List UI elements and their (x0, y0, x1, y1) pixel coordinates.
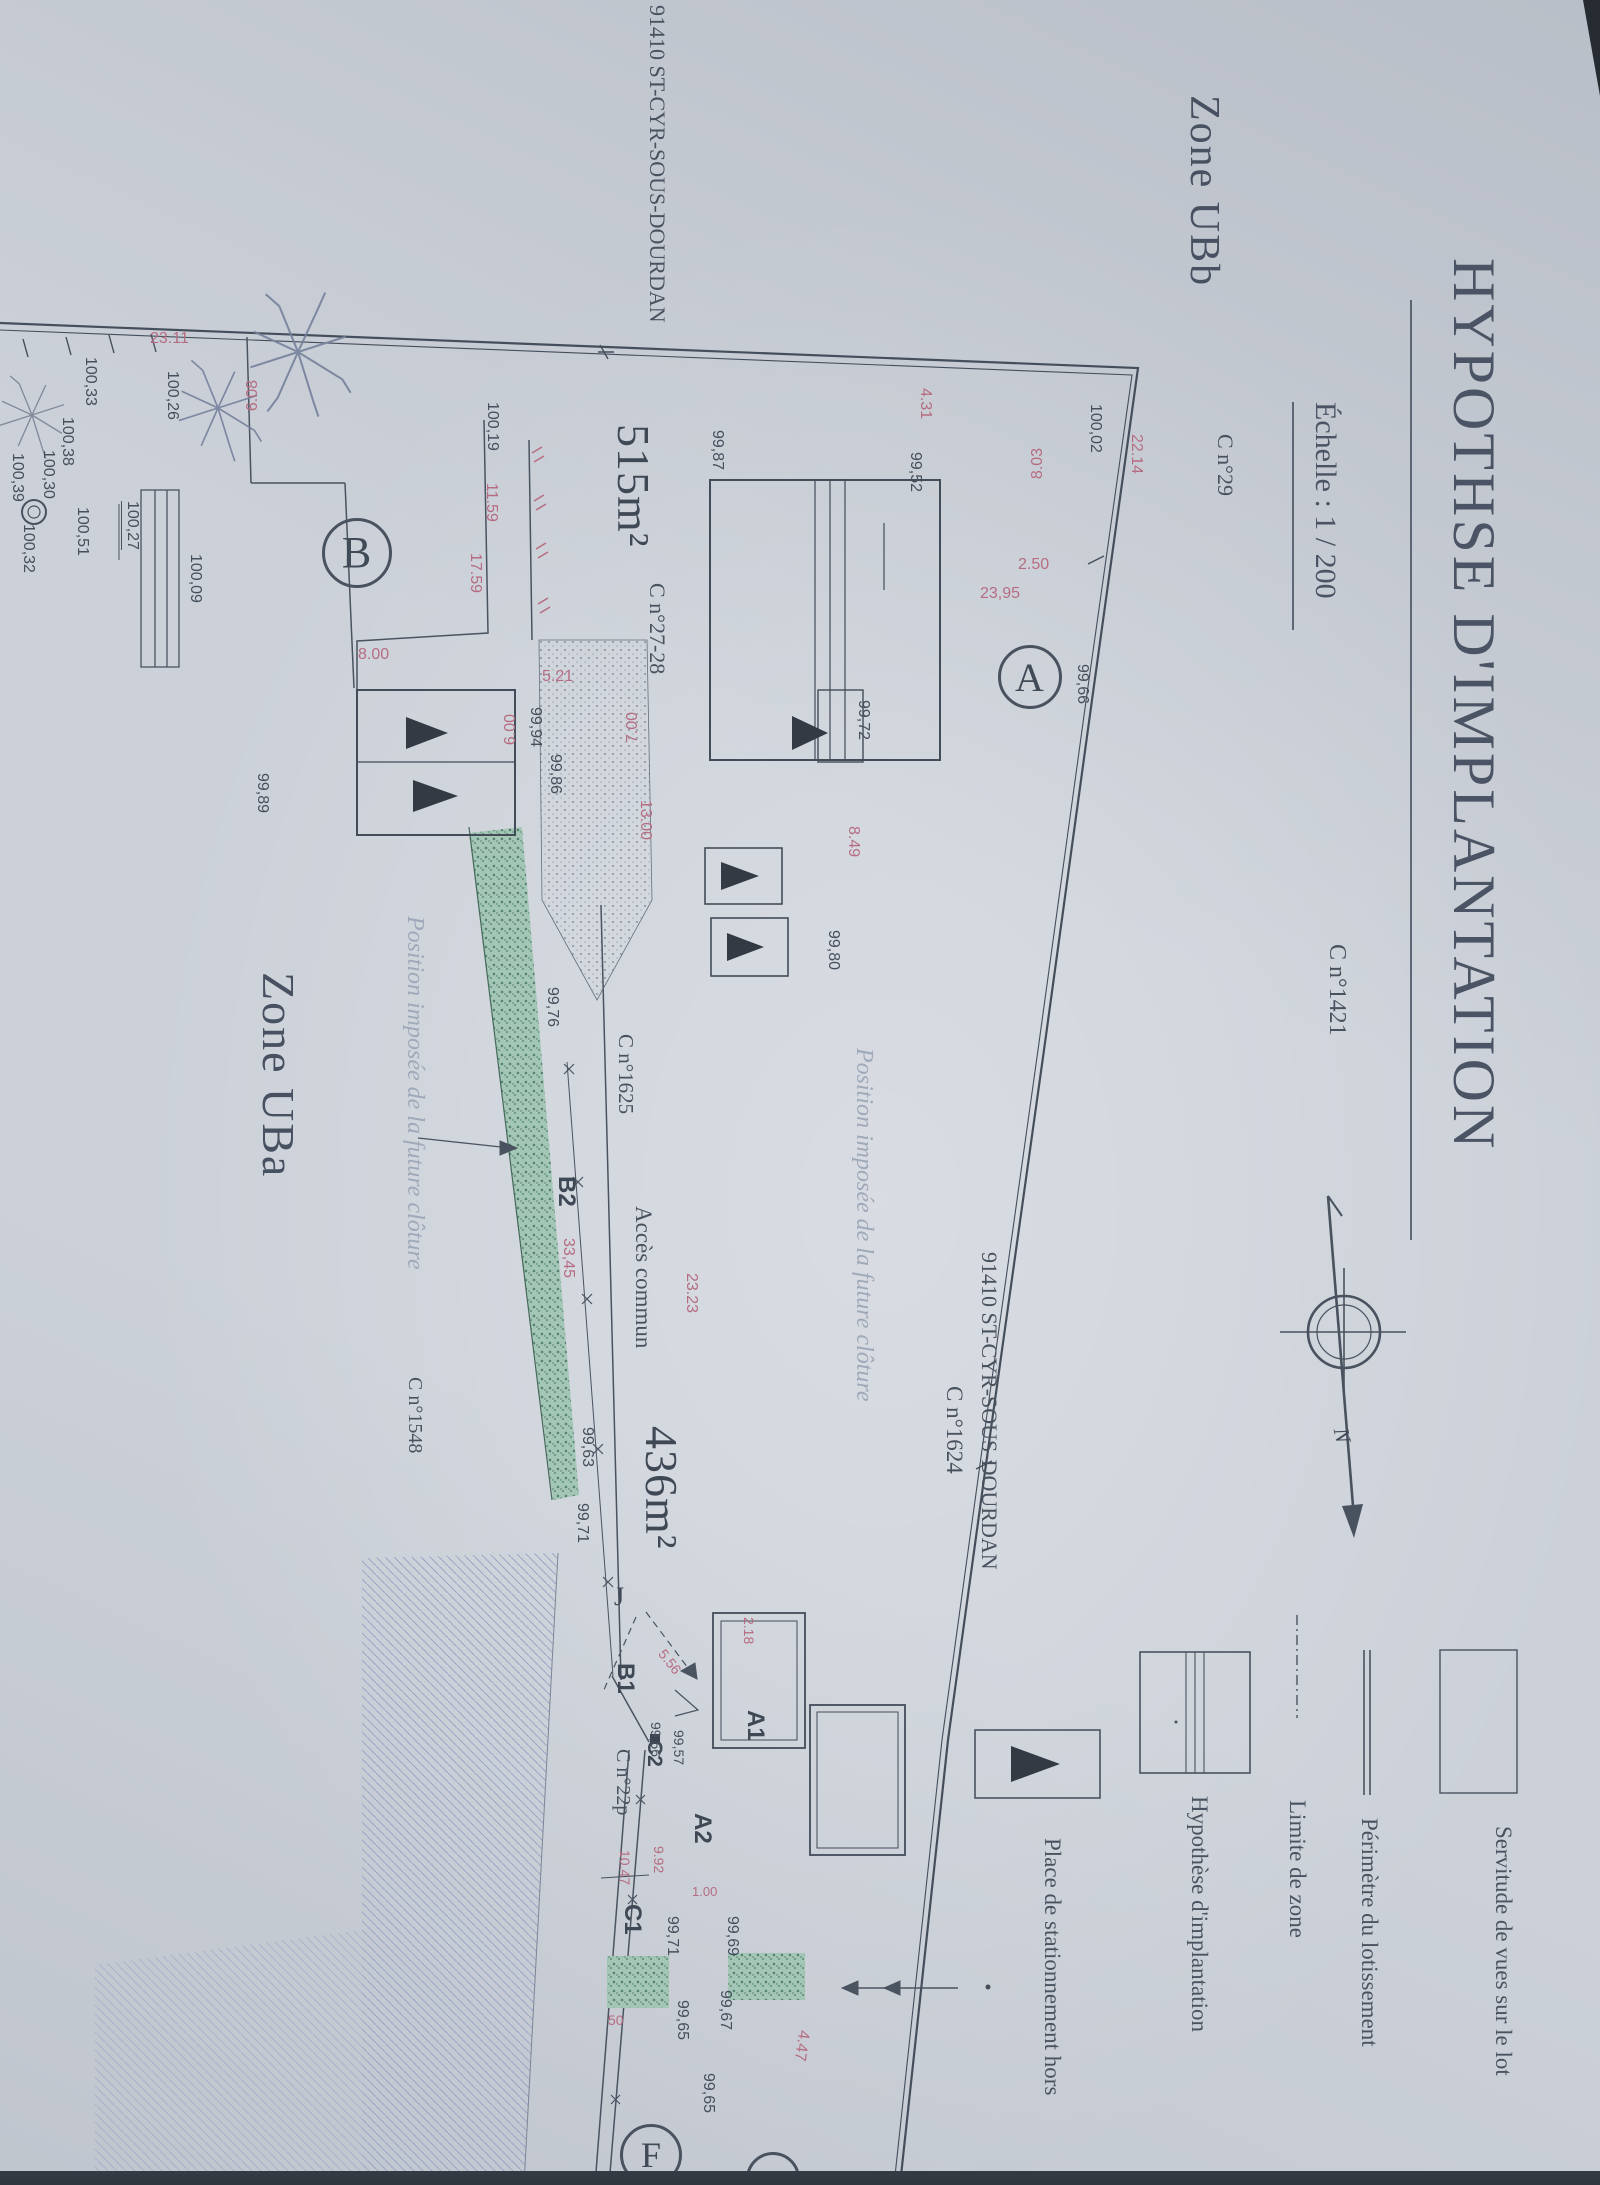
dimension-label: 5.21 (542, 668, 573, 686)
dimension-label: 22.14 (1127, 434, 1145, 474)
dimension-label: 8.00 (358, 646, 389, 664)
elevation-label: 99,89 (253, 773, 271, 813)
building-a1 (810, 1705, 905, 1855)
commune-label: 91410 ST-CYR-SOUS-DOURDAN (976, 1252, 1002, 1570)
building-b (357, 690, 515, 835)
title-underline (1410, 300, 1412, 1240)
elevation-label: 99,87 (708, 430, 726, 470)
elevation-label: 100,02 (1086, 404, 1104, 453)
scanned-plan-photo: HYPOTHSE D'IMPLANTATION Échelle : 1 / 20… (0, 0, 1600, 2185)
point-b2: B2 (552, 1176, 580, 1207)
dimension-label: 23.23 (682, 1273, 700, 1313)
legend-stationnement-label: Place de stationnement hors (1039, 1838, 1065, 2095)
dimension-label: 23.11 (150, 330, 189, 348)
elevation-label: 99,66 (1073, 664, 1091, 704)
legend-swatches (975, 1615, 1517, 1798)
parcel-a-letter: A (1016, 653, 1045, 700)
legend-hypothese-label: Hypothèse d'implantation (1186, 1796, 1212, 2032)
dimension-label: 7.00 (624, 712, 642, 743)
dimension-label: 17.59 (466, 553, 484, 593)
zone-uba-label: Zone UBa (252, 972, 305, 1178)
dimension-label: 8.49 (844, 826, 862, 857)
parcel-b-badge: B (322, 518, 392, 588)
elevation-label: 99,71 (573, 1503, 591, 1543)
commune-label: 91410 ST-CYR-SOUS-DOURDAN (644, 5, 670, 323)
elevation-label: 100,33 (81, 357, 99, 406)
parcel-a-area: 515m² (607, 424, 660, 548)
access-label: Accès commun (630, 1206, 656, 1348)
legend-servitude-swatch (1440, 1650, 1517, 1793)
elevation-label: 100,09 (186, 554, 204, 603)
legend-limite-label: Limite de zone (1284, 1800, 1310, 1938)
legend-perimetre-label: Périmètre du lotissement (1356, 1818, 1382, 2047)
cadastre-ref-c22p: C n°22p (611, 1749, 634, 1815)
elevation-label: 99,76 (543, 987, 561, 1027)
dimension-label: 8.03 (1029, 448, 1047, 479)
elevation-label: 100,38 (58, 417, 76, 466)
elevation-label: 100,39 (8, 453, 26, 502)
cadastre-ref-c1548: C n°1548 (403, 1377, 426, 1453)
elevation-label: 100,19 (483, 402, 501, 451)
zone-ubb-label: Zone UBb (1180, 95, 1228, 287)
legend-hypothese-swatch (1140, 1652, 1250, 1773)
elevation-label: 100,26 (163, 371, 181, 420)
cadastre-ref-c1625: C n°1625 (613, 1034, 638, 1114)
parcel-b-letter: B (342, 527, 371, 578)
hatched-neighbour-zone (95, 1553, 558, 2185)
dimension-label: 33,45 (559, 1238, 577, 1278)
parcel-f-letter: F (641, 2134, 661, 2176)
dimension-label: 50 (608, 2012, 624, 2028)
green-planting-block (728, 1953, 805, 2000)
page-title: HYPOTHSE D'IMPLANTATION (1439, 258, 1508, 1151)
fence-note: Position imposée de la future clôture (401, 916, 428, 1270)
dimension-label: 11.59 (482, 483, 500, 522)
dimension-label: 6.08 (244, 380, 262, 411)
existing-building (141, 490, 179, 667)
elevation-label: 99,69 (723, 1916, 741, 1956)
point-b1: B1 (611, 1663, 639, 1694)
elevation-label: 99,52 (906, 452, 924, 492)
plan-sheet: HYPOTHSE D'IMPLANTATION Échelle : 1 / 20… (0, 0, 1600, 2185)
parcel-b-area: 436m² (635, 1426, 688, 1550)
parcel-a-badge: A (998, 645, 1062, 709)
dimension-label: 10.47 (617, 1850, 633, 1885)
elevation-label: 99,80 (824, 930, 842, 970)
elevation-label: 99,56 (648, 1722, 664, 1757)
point-a2: A2 (688, 1813, 716, 1844)
elevation-label: 99,65 (673, 2000, 691, 2040)
scale-underline (1292, 402, 1294, 630)
elevation-label: 99,94 (526, 707, 544, 747)
elevation-label: 99,57 (671, 1730, 687, 1765)
dimension-label: 2.50 (1018, 556, 1049, 574)
green-planting-block (607, 1956, 669, 2008)
elevation-label: 100,32 (19, 524, 37, 573)
elevation-label: 100,51 (73, 507, 91, 556)
elevation-label: 100,30 (39, 450, 57, 499)
dimension-label: 6.00 (502, 714, 520, 745)
cadastre-ref-c2728: C n°27-28 (644, 583, 670, 674)
point-c1: C1 (618, 1904, 646, 1935)
legend-perimetre-swatch (1364, 1650, 1370, 1795)
dimension-label: 9.92 (651, 1846, 667, 1873)
cadastre-ref-c29: C n°29 (1212, 434, 1238, 496)
leader-j-mark: J (614, 1582, 624, 1612)
elevation-label: 99,72 (854, 700, 872, 740)
legend-servitude-label: Servitude de vues sur le lot (1490, 1826, 1516, 2076)
elevation-label: 99,65 (699, 2073, 717, 2113)
elevation-label: 99,71 (663, 1916, 681, 1956)
manhole-icon (22, 500, 46, 524)
dimension-label: 1.00 (692, 1884, 717, 1899)
north-arrow-icon (1280, 1196, 1406, 1538)
elevation-label: 99,63 (578, 1427, 596, 1467)
dimension-label: 2.18 (741, 1617, 757, 1644)
point-a1: A1 (741, 1710, 769, 1741)
cadastre-ref-c1624: C n°1624 (941, 1386, 967, 1474)
dimension-label: 13.00 (636, 800, 654, 840)
building-a (705, 480, 940, 976)
dimension-label: 4.31 (916, 388, 934, 419)
cadastre-ref-c1421: C n°1421 (1323, 944, 1350, 1036)
elevation-label: 99,67 (716, 1990, 734, 2030)
elevation-label: 99,86 (546, 754, 564, 794)
photo-edge-shadow (0, 2171, 1600, 2185)
legend-stationnement-swatch (975, 1730, 1100, 1798)
elevation-label: 100,27 (121, 501, 141, 550)
dimension-label: 23,95 (980, 585, 1020, 603)
scale-label: Échelle : 1 / 200 (1308, 402, 1342, 599)
servitude-view-ticks (532, 447, 550, 613)
survey-dot (986, 1985, 991, 1990)
fence-note: Position imposée de la future clôture (850, 1048, 877, 1402)
